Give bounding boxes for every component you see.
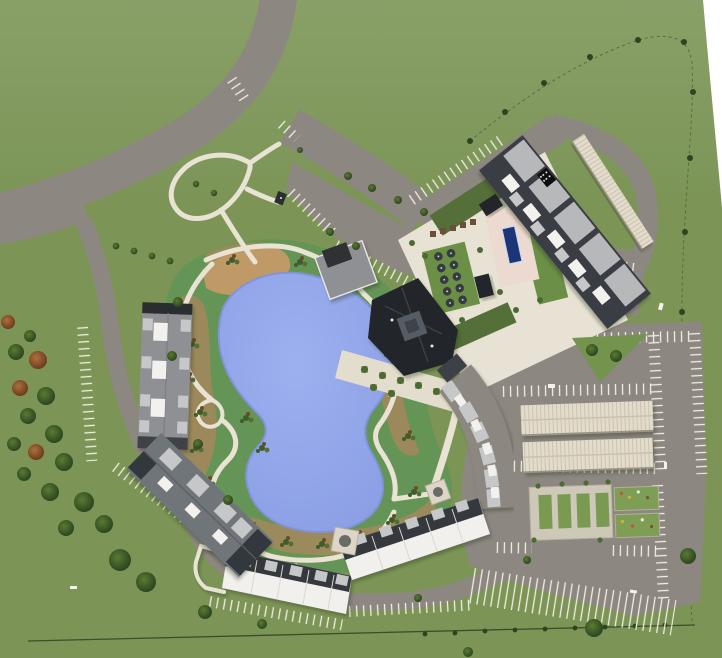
- site-plan-svg: [0, 0, 722, 658]
- site-plan-image: [0, 0, 722, 658]
- apartment-building-west: [137, 302, 192, 450]
